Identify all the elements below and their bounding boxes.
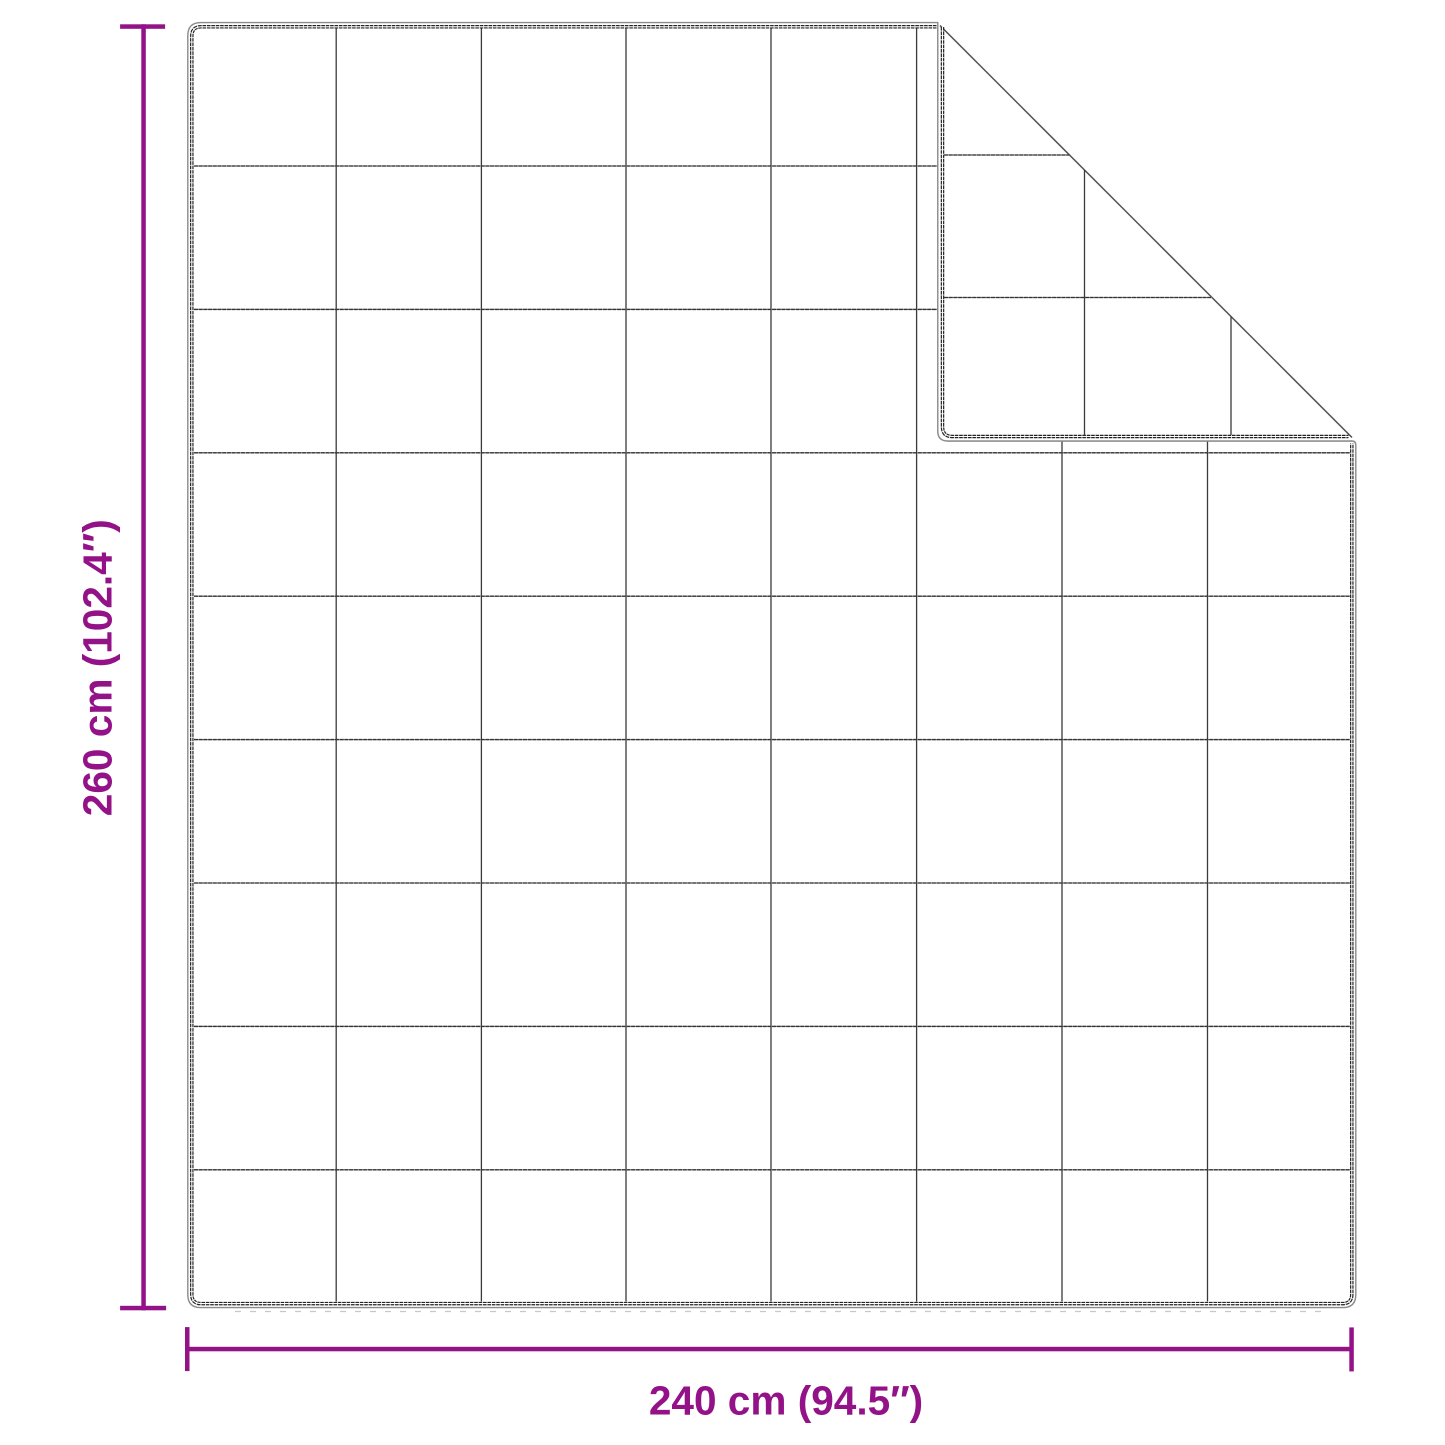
svg-text:260 cm (102.4″): 260 cm (102.4″) bbox=[75, 519, 121, 816]
svg-text:240 cm (94.5″): 240 cm (94.5″) bbox=[649, 1378, 923, 1424]
